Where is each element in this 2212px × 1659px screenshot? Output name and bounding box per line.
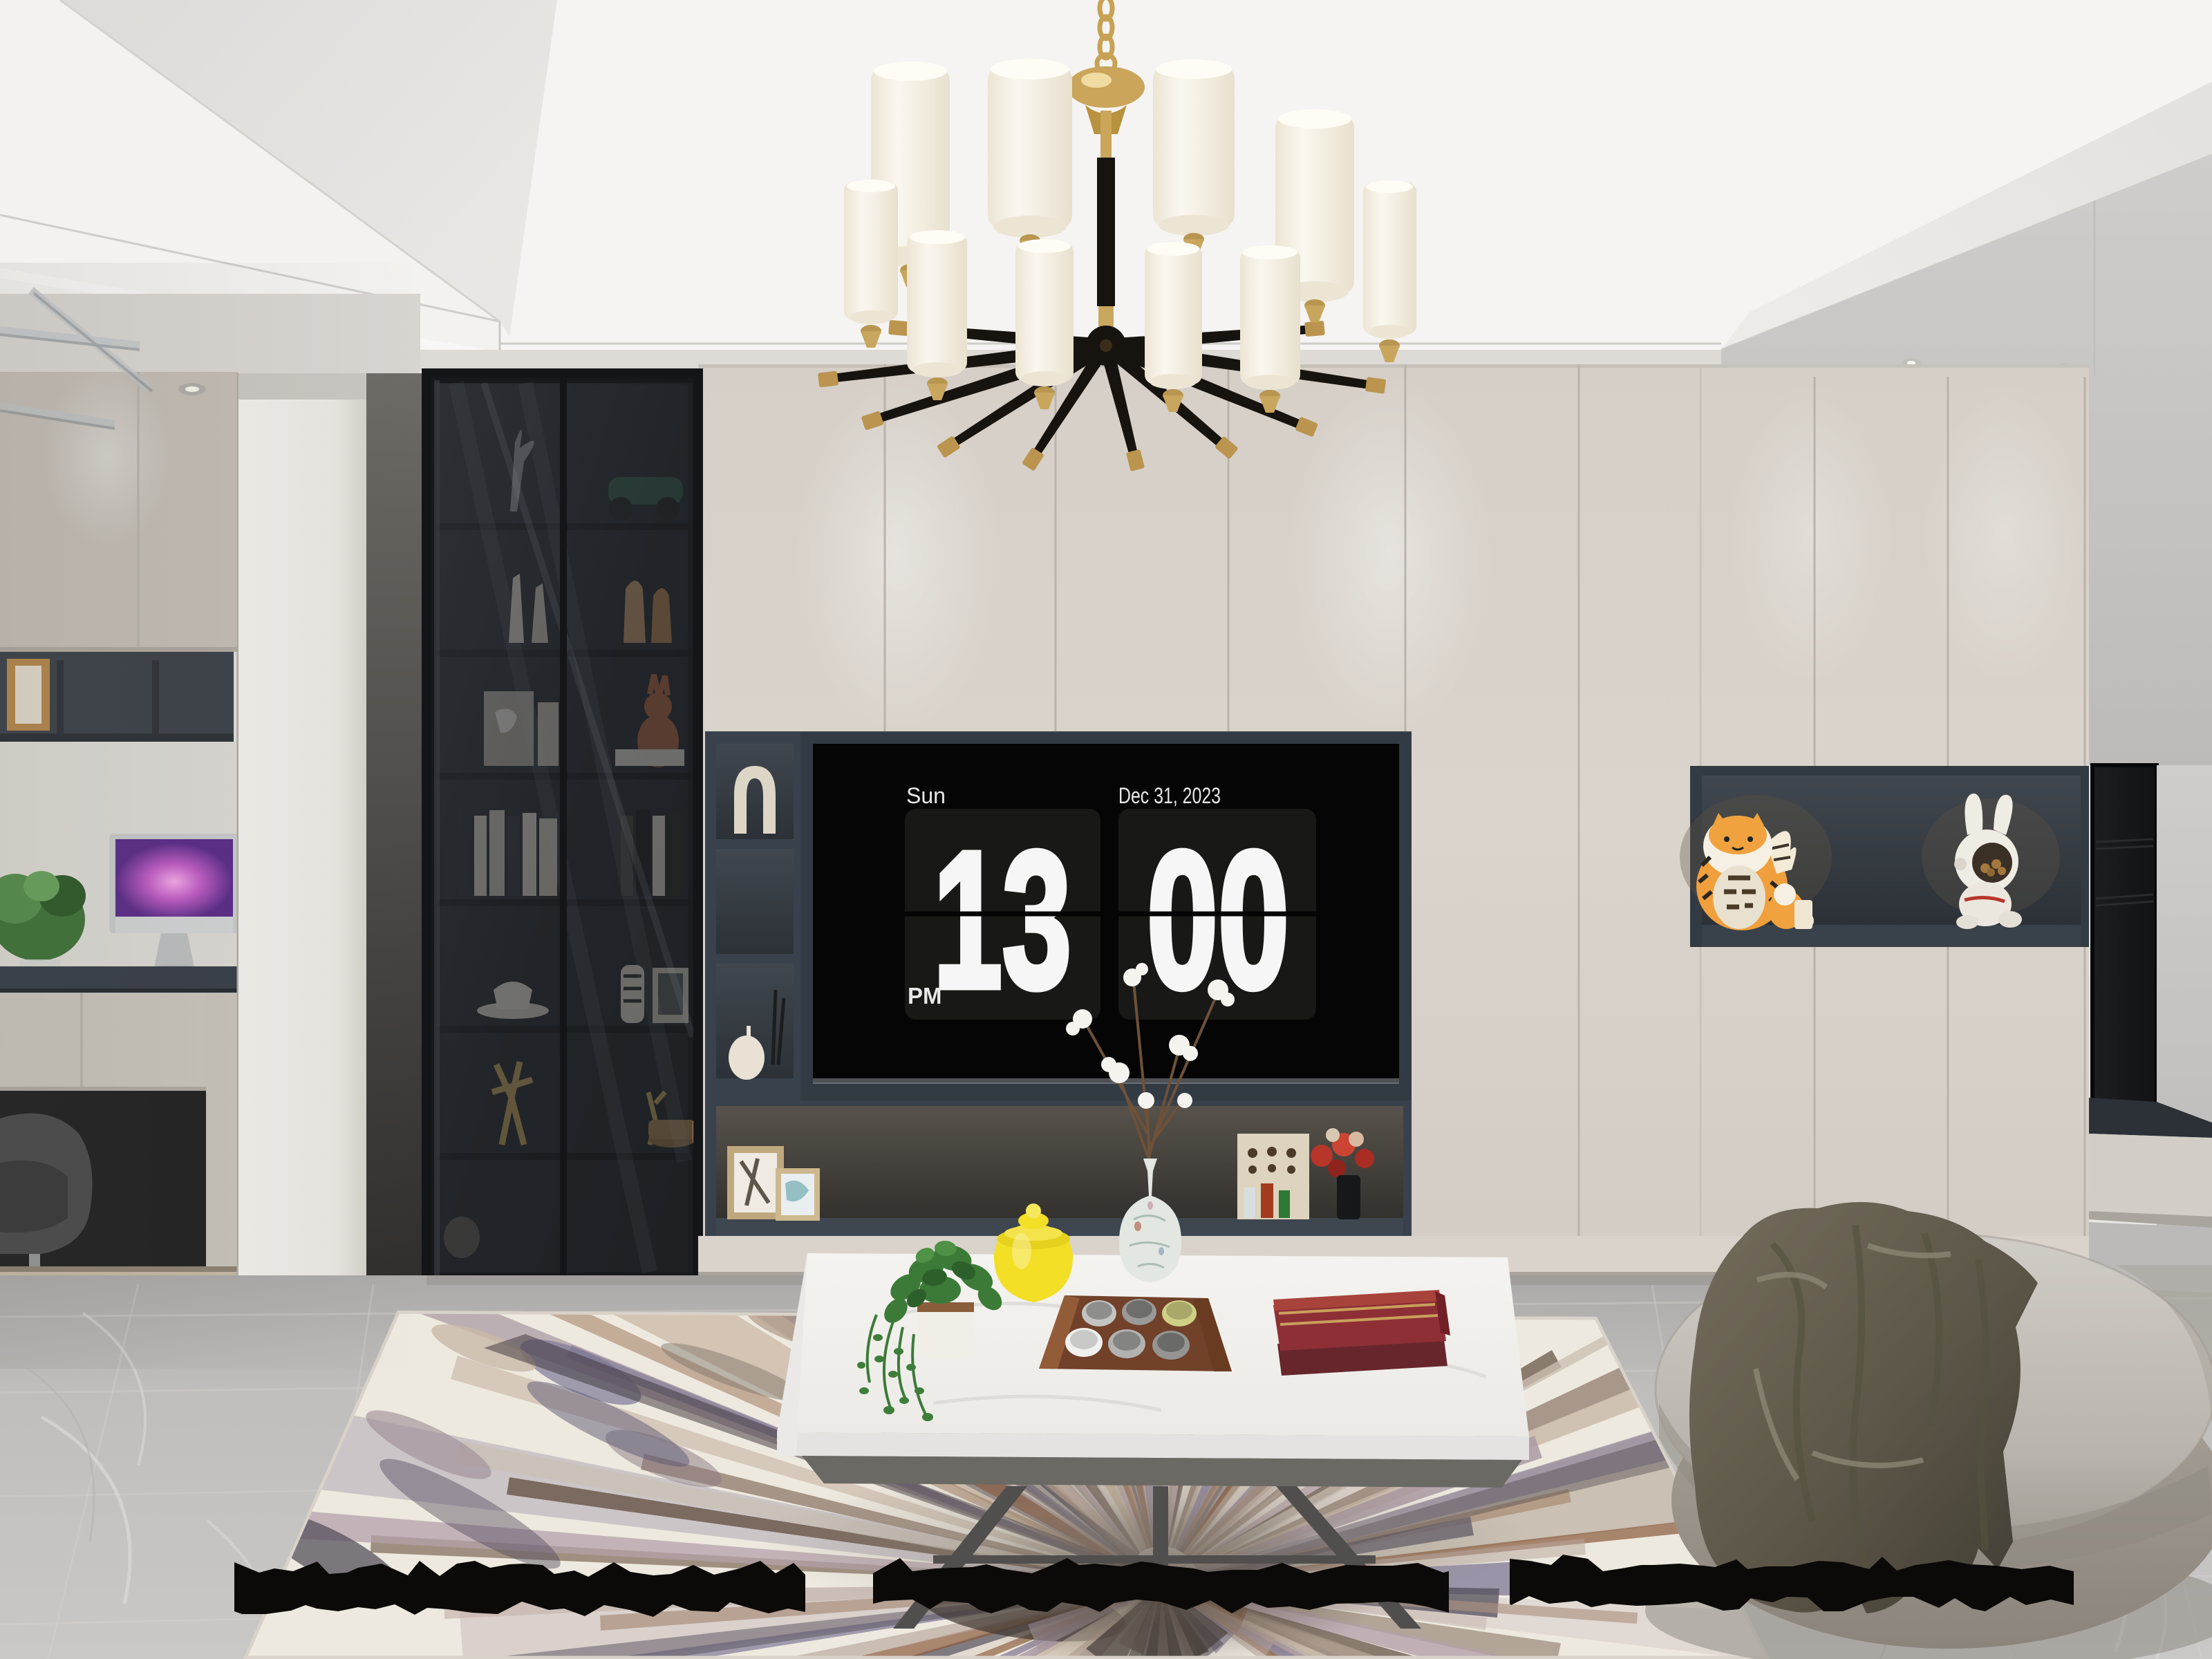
svg-text:Dec 31, 2023: Dec 31, 2023: [1118, 783, 1221, 808]
svg-text:Sun: Sun: [906, 783, 946, 808]
svg-text:13: 13: [933, 811, 1071, 1029]
svg-text:PM: PM: [908, 983, 942, 1009]
